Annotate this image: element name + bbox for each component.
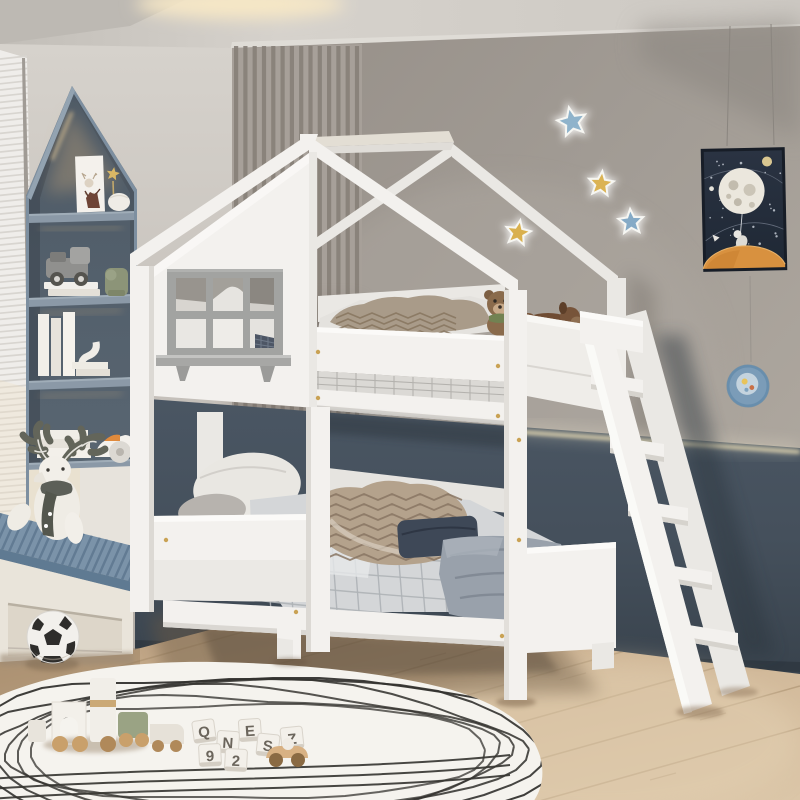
svg-text:E: E [245, 723, 256, 741]
svg-text:9: 9 [205, 748, 214, 765]
svg-text:2: 2 [231, 753, 240, 770]
